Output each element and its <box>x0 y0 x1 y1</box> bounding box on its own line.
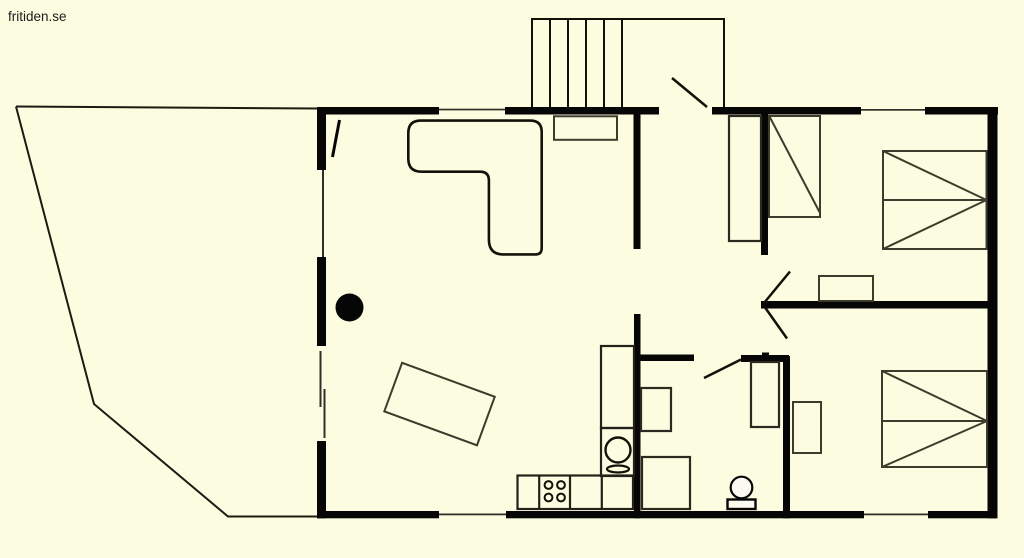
svg-text:fritiden.se: fritiden.se <box>8 9 67 24</box>
